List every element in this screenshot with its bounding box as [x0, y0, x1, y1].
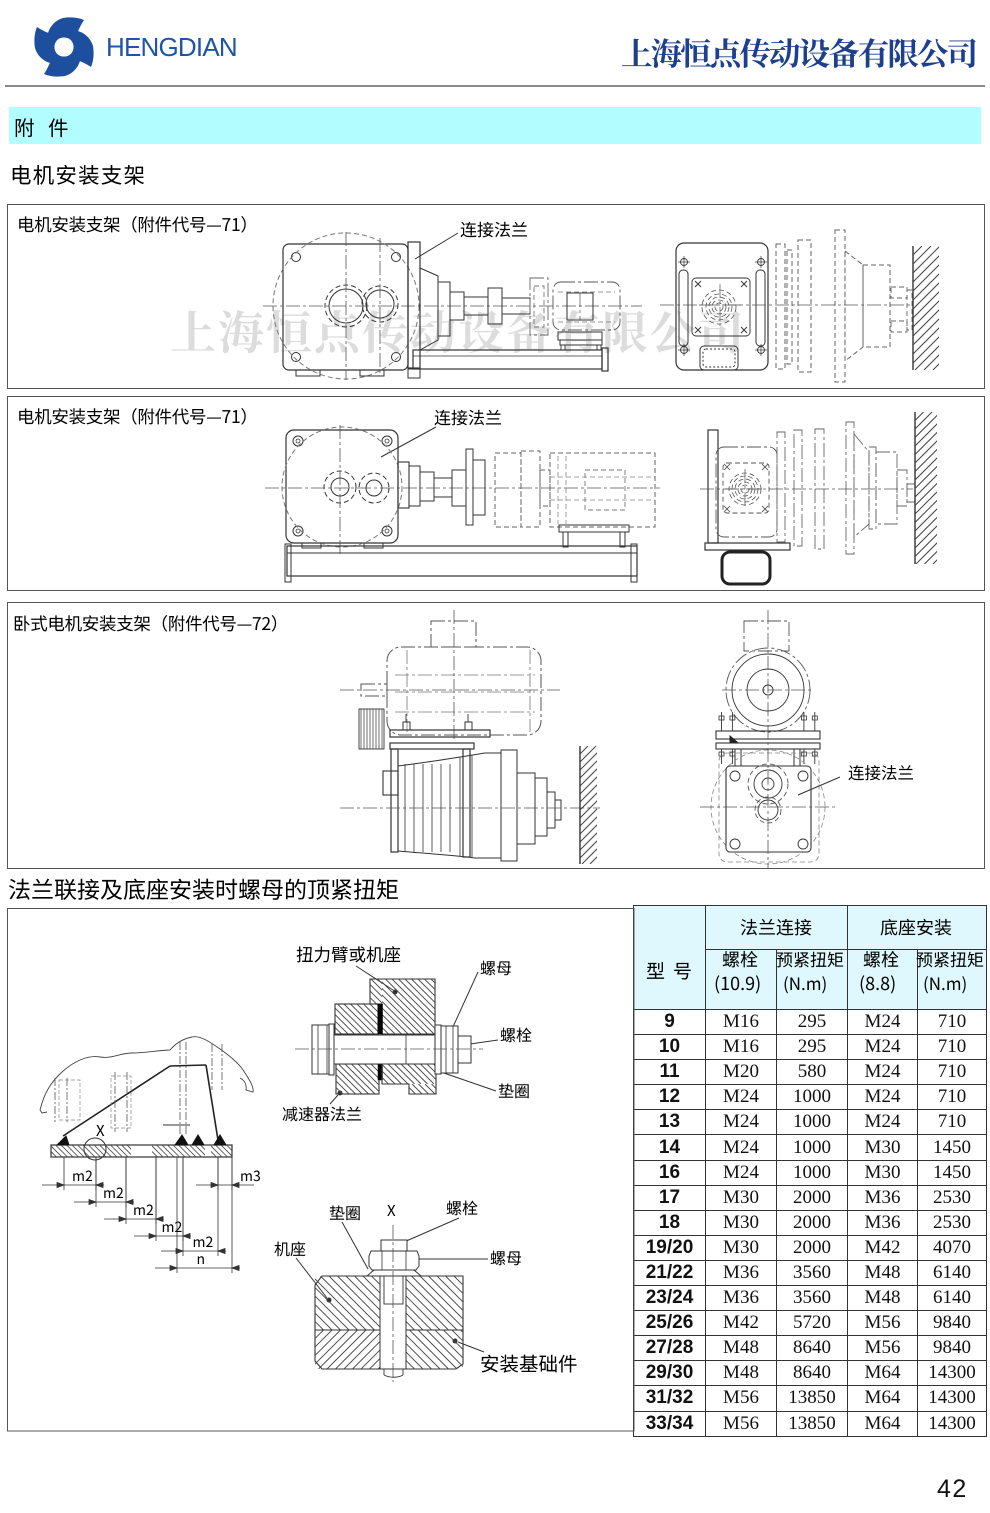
- svg-text:HENGDIAN: HENGDIAN: [106, 32, 237, 62]
